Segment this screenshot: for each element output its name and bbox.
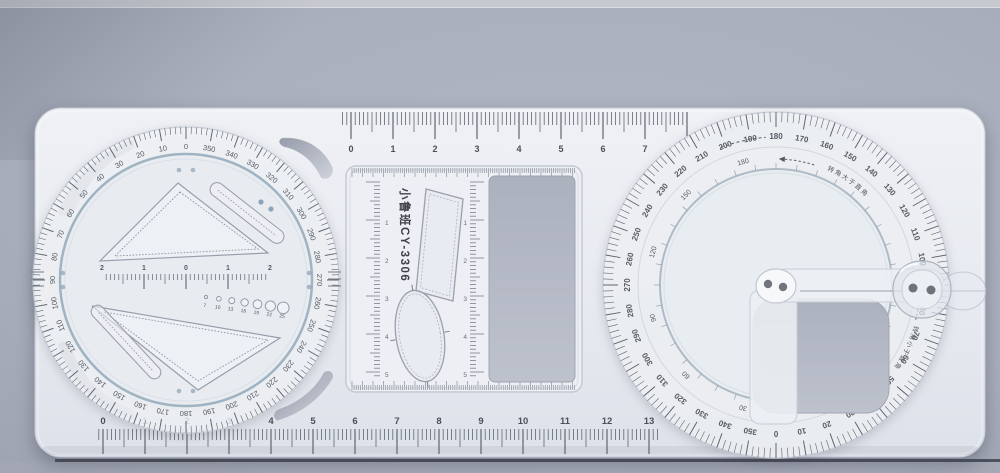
pin-hole	[61, 271, 66, 276]
svg-text:2: 2	[100, 265, 104, 272]
svg-text:1: 1	[142, 265, 146, 272]
svg-text:180: 180	[180, 409, 193, 418]
svg-text:2: 2	[432, 144, 437, 154]
slider-handle	[893, 261, 951, 318]
svg-text:270: 270	[315, 274, 324, 287]
svg-text:5: 5	[558, 144, 563, 154]
svg-text:13: 13	[644, 416, 655, 427]
pin-hole	[191, 389, 196, 394]
svg-text:13: 13	[227, 306, 234, 313]
svg-text:12: 12	[602, 416, 613, 427]
svg-text:4: 4	[268, 416, 274, 427]
svg-text:7: 7	[394, 416, 399, 427]
svg-text:0: 0	[184, 265, 188, 272]
svg-text:0: 0	[348, 144, 353, 154]
svg-text:1: 1	[226, 265, 230, 272]
svg-text:10: 10	[158, 143, 168, 153]
svg-text:2: 2	[385, 258, 389, 265]
photo-scene: 1234512345 小鲁班CY-3306 01234567 012345678…	[0, 0, 1000, 473]
svg-text:80: 80	[49, 252, 59, 262]
svg-text:2: 2	[268, 265, 272, 272]
pin-hole	[177, 168, 182, 173]
pin-hole	[307, 285, 312, 290]
svg-text:10: 10	[214, 304, 221, 311]
svg-text:5: 5	[385, 372, 389, 379]
pin-hole	[61, 285, 66, 290]
pin-hole	[177, 389, 182, 394]
arm-vertical-bar	[750, 290, 797, 424]
svg-text:0: 0	[100, 416, 105, 427]
svg-text:3: 3	[385, 296, 389, 303]
svg-text:4: 4	[385, 334, 389, 341]
svg-text:5: 5	[463, 372, 467, 379]
svg-text:11: 11	[560, 416, 571, 427]
svg-text:16: 16	[240, 308, 247, 315]
svg-text:3: 3	[474, 144, 479, 154]
svg-text:10: 10	[518, 416, 529, 427]
brand-label: 小鲁班CY-3306	[398, 187, 412, 282]
svg-text:7: 7	[642, 144, 647, 154]
pin-hole	[191, 168, 196, 173]
pin-hole	[258, 199, 263, 204]
svg-text:6: 6	[600, 144, 605, 154]
svg-text:22: 22	[266, 312, 273, 319]
pivot-rivet	[756, 269, 796, 303]
svg-text:9: 9	[478, 416, 483, 427]
svg-text:6: 6	[352, 416, 357, 427]
svg-text:180: 180	[769, 132, 783, 141]
svg-text:25: 25	[279, 313, 286, 320]
left-rotating-dial: 0102030405060708090100110120130140150160…	[31, 127, 341, 433]
svg-text:1: 1	[385, 220, 389, 227]
svg-text:2: 2	[463, 258, 467, 265]
svg-text:90: 90	[48, 276, 57, 284]
pin-hole	[307, 271, 312, 276]
svg-text:1: 1	[390, 144, 395, 154]
pin-hole	[268, 206, 273, 211]
svg-text:4: 4	[463, 334, 467, 341]
brand-text: 小鲁班CY-3306	[398, 187, 412, 282]
svg-text:0: 0	[184, 142, 188, 151]
svg-text:270: 270	[623, 278, 632, 292]
stencil-frame: 1234512345	[346, 166, 582, 392]
svg-text:1: 1	[463, 220, 467, 227]
svg-text:5: 5	[310, 416, 316, 427]
svg-text:19: 19	[253, 310, 260, 317]
svg-text:0: 0	[773, 429, 778, 438]
svg-text:4: 4	[516, 144, 521, 154]
svg-text:3: 3	[463, 296, 467, 303]
svg-text:8: 8	[436, 416, 441, 427]
